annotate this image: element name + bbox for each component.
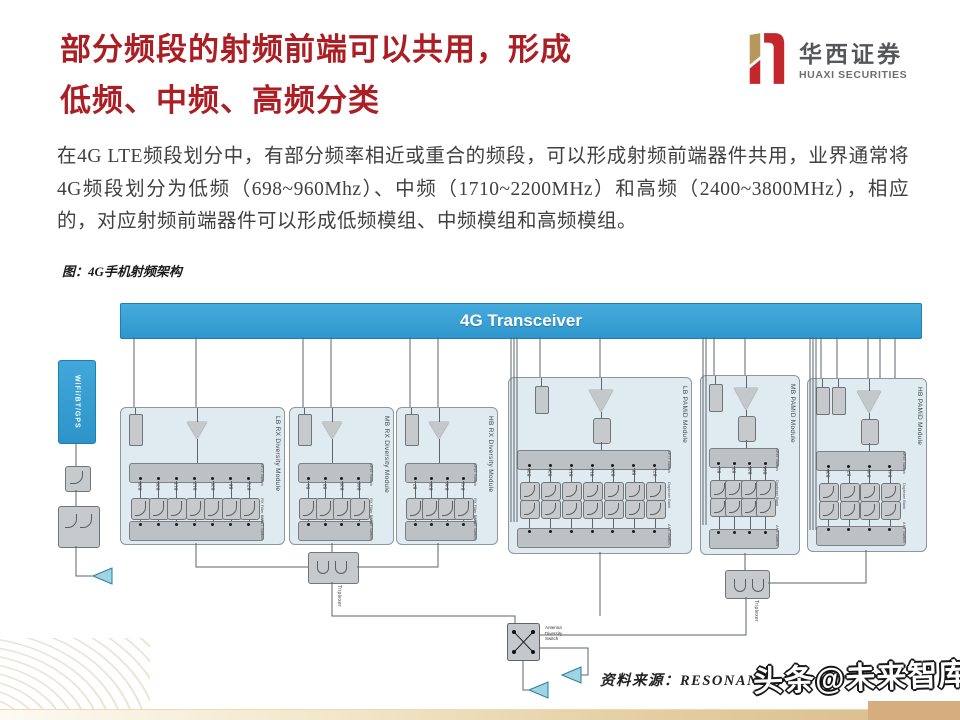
triplexer-2 xyxy=(725,570,770,599)
node-dot xyxy=(193,477,196,480)
pa-match-box xyxy=(861,419,879,445)
node-dot xyxy=(175,523,178,526)
port-box xyxy=(832,387,846,415)
filter-curve-icon xyxy=(745,483,756,495)
filter-box xyxy=(186,498,206,520)
wifi-label: WiFi/BT/GPS xyxy=(74,375,81,429)
filter-curve-icon xyxy=(354,501,365,516)
filter-curve-icon xyxy=(317,561,329,574)
duplexer-box xyxy=(583,482,603,501)
node-dot xyxy=(827,465,830,468)
wire xyxy=(332,439,333,463)
duplexer-box xyxy=(562,482,582,501)
band-label: B28 xyxy=(138,479,143,495)
duplexer-box xyxy=(756,480,776,499)
filter-box xyxy=(454,498,474,520)
filter-curve-icon xyxy=(337,501,348,516)
wire xyxy=(869,379,870,391)
bar-label: RX Filter Bank xyxy=(369,498,374,524)
antenna-switch-label: Antenna Diversity Switch xyxy=(545,625,579,642)
module-hb-pamid-module: HB PAMiD ModuleSP4T SwitchANT SwitchDupl… xyxy=(807,378,927,552)
page-title-line2: 低频、中频、高频分类 xyxy=(60,75,700,126)
duplexer-box xyxy=(541,500,561,519)
rf-diagram: 4G TransceiverWiFi/BT/GPSLB RX Diversity… xyxy=(35,290,925,710)
node-dot xyxy=(764,531,767,534)
filter-curve-icon xyxy=(442,501,453,516)
band-label: B7 xyxy=(413,479,418,495)
module-label: HB PAMiD Module xyxy=(916,387,923,445)
band-label: B26 xyxy=(210,479,215,495)
bar-label: RX Filter Bank xyxy=(260,498,265,524)
bar-label: ANT Switch xyxy=(902,522,907,543)
filter-curve-icon xyxy=(426,501,437,516)
node-dot xyxy=(414,477,417,480)
duplexer-box xyxy=(840,501,860,520)
antenna-switch-box xyxy=(507,623,540,661)
bar-label: SP7T Switch xyxy=(260,463,265,486)
node-dot xyxy=(446,523,449,526)
module-hb-rx-diversity-module: HB RX Diversity ModuleSP4T SwitchSP4T Sw… xyxy=(396,407,498,545)
wire xyxy=(541,378,542,386)
filter-curve-icon xyxy=(823,504,834,516)
filter-curve-icon xyxy=(410,501,421,516)
wire xyxy=(439,408,440,422)
figure-caption: 图：4G手机射频架构 xyxy=(62,261,182,280)
wire xyxy=(601,442,602,450)
duplexer-box xyxy=(604,500,624,519)
node-dot xyxy=(324,477,327,480)
port-box xyxy=(535,386,549,414)
node-dot xyxy=(549,464,552,467)
amplifier-icon xyxy=(429,422,449,439)
node-dot xyxy=(139,477,142,480)
node-dot xyxy=(324,523,327,526)
filter-curve-icon xyxy=(171,501,182,516)
node-dot xyxy=(733,462,736,465)
node-dot xyxy=(462,523,465,526)
body-paragraph: 在4G LTE频段划分中，有部分频率相近或重合的频段，可以形成射频前端器件共用，… xyxy=(57,141,909,239)
filter-curve-icon xyxy=(629,485,640,497)
page-title: 部分频段的射频前端可以共用，形成 低频、中频、高频分类 xyxy=(60,24,700,126)
band-label: B25 xyxy=(339,479,344,495)
filter-curve-icon xyxy=(714,501,725,513)
filter-curve-icon xyxy=(864,486,875,498)
band-label: B30 xyxy=(429,479,434,495)
wire xyxy=(304,408,305,414)
duplexer-box xyxy=(819,483,839,502)
filter-curve-icon xyxy=(885,504,896,516)
module-label: MB RX Diversity Module xyxy=(383,416,390,493)
duplexer-box xyxy=(646,500,666,519)
module-label: LB RX Diversity Module xyxy=(274,416,281,491)
pa-match-box xyxy=(738,416,756,442)
node-dot xyxy=(528,530,531,533)
filter-curve-icon xyxy=(885,486,896,498)
filter-curve-icon xyxy=(844,486,855,498)
band-label: B12 xyxy=(192,479,197,495)
band-label: B40 xyxy=(445,479,450,495)
duplexer-box xyxy=(520,500,540,519)
band-label: B3 xyxy=(323,479,328,495)
filter-box xyxy=(204,498,224,520)
filter-curve-icon xyxy=(566,503,577,515)
filter-curve-icon xyxy=(823,486,834,498)
node-dot xyxy=(307,477,310,480)
wire xyxy=(197,439,198,463)
wire xyxy=(838,379,839,387)
filter-curve-icon xyxy=(320,501,331,516)
filter-curve-icon xyxy=(608,485,619,497)
filter-curve-icon xyxy=(629,503,640,515)
filter-curve-icon xyxy=(524,485,535,497)
node-dot xyxy=(591,464,594,467)
node-dot xyxy=(570,530,573,533)
module-label: HB RX Diversity Module xyxy=(487,416,494,492)
filter-box xyxy=(222,498,242,520)
filter-curve-icon xyxy=(587,485,598,497)
node-dot xyxy=(430,477,433,480)
amplifier-icon xyxy=(187,422,207,439)
filter-box xyxy=(240,498,260,520)
node-dot xyxy=(570,464,573,467)
filter-curve-icon xyxy=(208,501,219,516)
antenna-icon xyxy=(562,667,581,683)
filter-curve-icon xyxy=(545,503,556,515)
node-dot xyxy=(868,465,871,468)
antenna-switch-bar xyxy=(129,521,264,541)
node-dot xyxy=(462,477,465,480)
filter-box xyxy=(167,498,187,520)
filter-curve-icon xyxy=(226,501,237,516)
logo-name-cn: 华西证券 xyxy=(799,41,907,67)
port-box xyxy=(405,414,419,446)
port-box xyxy=(709,384,723,412)
page-title-line1: 部分频段的射频前端可以共用，形成 xyxy=(60,24,700,75)
bar-label: SP4T Switch xyxy=(369,463,374,486)
band-label: B41 xyxy=(461,479,466,495)
bar-label: ANT Switch xyxy=(775,525,780,546)
node-dot xyxy=(193,523,196,526)
duplexer-box xyxy=(583,500,603,519)
module-label: LB PAMiD Module xyxy=(681,386,688,443)
duplexer-box xyxy=(625,500,645,519)
module-mb-rx-diversity-module: MB RX Diversity ModuleSP4T SwitchSP4T Sw… xyxy=(289,407,394,545)
wifi-box: WiFi/BT/GPS xyxy=(58,360,96,444)
filter-curve-icon xyxy=(303,501,314,516)
node-dot xyxy=(764,462,767,465)
amplifier-icon xyxy=(322,422,342,439)
node-dot xyxy=(430,523,433,526)
filter-curve-icon xyxy=(545,485,556,497)
bar-label: SP4T Switch xyxy=(775,448,780,471)
filter-curve-icon xyxy=(760,483,771,495)
wire xyxy=(869,443,870,451)
module-mb-pamid-module: MB PAMiD ModuleSP4T SwitchANT SwitchDupl… xyxy=(700,375,800,555)
node-dot xyxy=(446,477,449,480)
node-dot xyxy=(733,531,736,534)
triplexer-1 xyxy=(308,552,359,584)
huaxi-logo-icon xyxy=(743,30,789,91)
duplexer-box xyxy=(840,483,860,502)
amplifier-icon xyxy=(857,391,881,413)
filter-curve-icon xyxy=(745,501,756,513)
duplexer-box xyxy=(881,483,901,502)
duplexer-box xyxy=(646,482,666,501)
filter-curve-icon xyxy=(524,503,535,515)
filter-curve-icon xyxy=(760,501,771,513)
antenna-switch-bar xyxy=(517,528,671,548)
node-dot xyxy=(157,523,160,526)
filter-curve-icon xyxy=(458,501,469,516)
duplexer-box xyxy=(860,483,880,502)
band-label: B20 xyxy=(156,479,161,495)
band-label: B13 xyxy=(174,479,179,495)
filter-curve-icon xyxy=(752,579,764,592)
swoosh-decoration xyxy=(0,638,150,716)
filter-box xyxy=(350,498,370,520)
bottom-strip xyxy=(0,709,960,720)
filter-curve-icon xyxy=(729,483,740,495)
filter-curve-icon xyxy=(153,501,164,516)
filter-curve-icon xyxy=(650,485,661,497)
bar-label: Duplexer Bank xyxy=(902,483,907,509)
triplexer-label: Triplexer xyxy=(753,600,759,622)
node-dot xyxy=(175,477,178,480)
filter-curve-icon xyxy=(244,501,255,516)
slide-page: 部分频段的射频前端可以共用，形成 低频、中频、高频分类 华西证券 HUAXI S… xyxy=(0,0,960,720)
duplexer-box xyxy=(541,482,561,501)
bar-label: SP4T Switch xyxy=(902,451,907,474)
wire xyxy=(869,413,870,419)
node-dot xyxy=(591,530,594,533)
duplexer-box xyxy=(520,482,540,501)
node-dot xyxy=(139,523,142,526)
port-box xyxy=(129,414,143,446)
band-label: B71 xyxy=(246,479,251,495)
module-lb-pamid-module: LB PAMiD ModuleSP7T SwitchANT SwitchDupl… xyxy=(508,377,692,554)
duplexer-box xyxy=(756,498,776,517)
transceiver-bar: 4G Transceiver xyxy=(120,303,922,339)
filter-curve-icon xyxy=(587,503,598,515)
wire xyxy=(439,439,440,463)
band-label: B1 xyxy=(306,479,311,495)
duplexer-box xyxy=(604,482,624,501)
filter-curve-icon xyxy=(190,501,201,516)
wire xyxy=(332,408,333,422)
filter-curve-icon xyxy=(734,579,746,592)
wire xyxy=(601,378,602,390)
company-logo: 华西证券 HUAXI SECURITIES xyxy=(743,30,907,91)
filter-box xyxy=(149,498,169,520)
wire xyxy=(197,408,198,422)
node-dot xyxy=(414,523,417,526)
node-dot xyxy=(868,528,871,531)
duplexer-box xyxy=(819,501,839,520)
bar-label: SP7T Switch xyxy=(667,450,672,473)
bar-label: SP4T Switch xyxy=(473,463,478,486)
duplexer-box xyxy=(625,482,645,501)
wire xyxy=(822,379,823,387)
filter-curve-icon xyxy=(714,483,725,495)
antenna-icon xyxy=(93,568,112,584)
watermark: 头条@未来智库 xyxy=(752,649,960,701)
bar-label: Duplexer Bank xyxy=(667,482,672,508)
amplifier-icon xyxy=(734,388,758,410)
duplexer-box xyxy=(562,500,582,519)
bar-label: ANT Switch xyxy=(667,524,672,545)
wire xyxy=(411,408,412,414)
wire xyxy=(135,408,136,414)
node-dot xyxy=(549,530,552,533)
triplexer-label: Triplexer xyxy=(336,585,342,607)
wire xyxy=(715,376,716,384)
logo-name-en: HUAXI SECURITIES xyxy=(799,69,907,81)
filter-curve-icon xyxy=(566,485,577,497)
antenna-icon xyxy=(529,682,548,698)
band-label: B66 xyxy=(356,479,361,495)
node-dot xyxy=(827,528,830,531)
wire xyxy=(746,440,747,448)
module-label: MB PAMiD Module xyxy=(789,384,796,443)
filter-curve-icon xyxy=(844,504,855,516)
filter-box xyxy=(131,498,151,520)
port-box xyxy=(816,387,830,415)
filter-curve-icon xyxy=(135,501,146,516)
filter-curve-icon xyxy=(335,561,347,574)
amplifier-icon xyxy=(589,390,613,412)
node-dot xyxy=(307,523,310,526)
duplexer-box xyxy=(881,501,901,520)
port-box xyxy=(298,414,312,446)
module-lb-rx-diversity-module: LB RX Diversity ModuleSP7T SwitchSP7T Sw… xyxy=(120,407,285,545)
filter-curve-icon xyxy=(650,503,661,515)
filter-curve-icon xyxy=(608,503,619,515)
wire xyxy=(746,410,747,416)
node-dot xyxy=(157,477,160,480)
wire xyxy=(601,412,602,418)
wire xyxy=(746,376,747,388)
node-dot xyxy=(528,464,531,467)
filter-curve-icon xyxy=(864,504,875,516)
filter-curve-icon xyxy=(729,501,740,513)
band-label: B8 xyxy=(228,479,233,495)
duplexer-box xyxy=(860,501,880,520)
pa-match-box xyxy=(593,418,611,444)
corner-accent xyxy=(868,701,960,720)
